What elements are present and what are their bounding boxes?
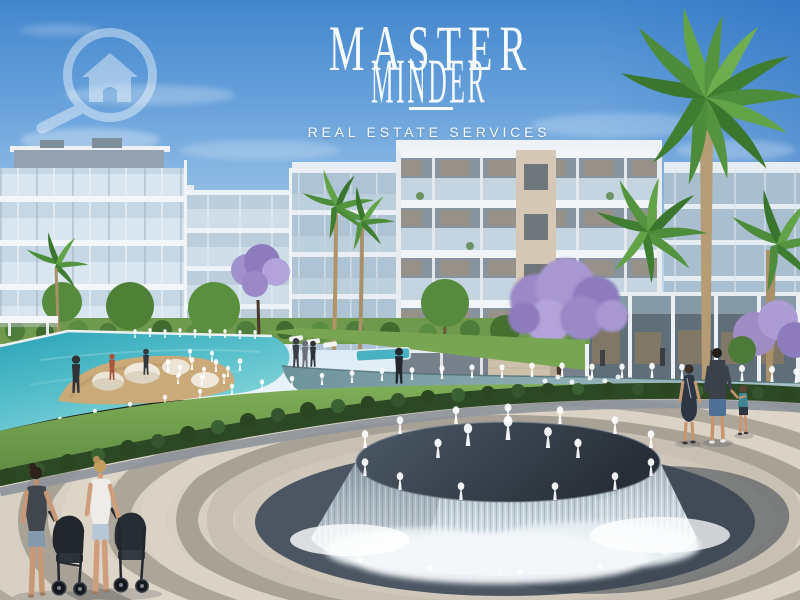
brand-subtitle: REAL ESTATE SERVICES <box>308 124 551 140</box>
brand-divider <box>409 107 453 110</box>
building-a <box>0 138 184 336</box>
property-rendering: MASTER MINDER REAL ESTATE SERVICES <box>0 0 800 600</box>
